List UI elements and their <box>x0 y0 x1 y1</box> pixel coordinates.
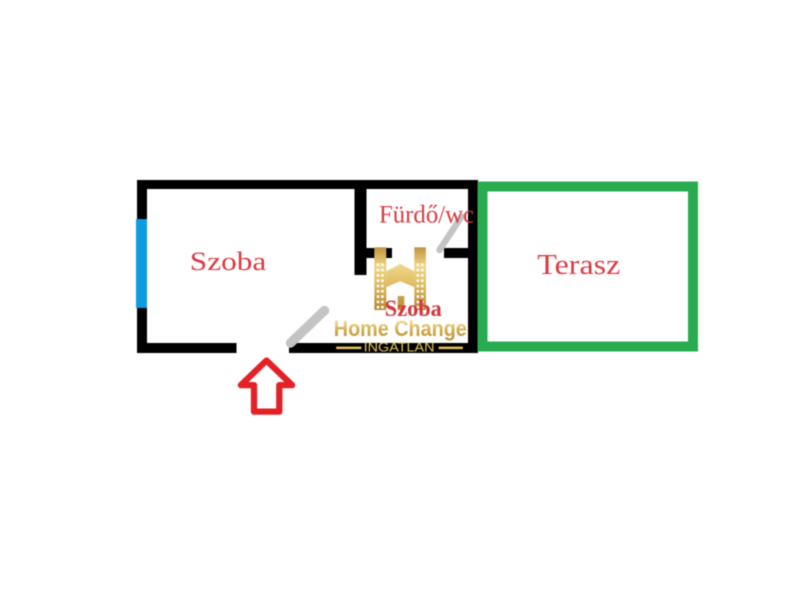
svg-text:Fürdő/wc: Fürdő/wc <box>379 201 474 228</box>
svg-text:Home Change: Home Change <box>334 316 467 341</box>
svg-text:INGATLAN: INGATLAN <box>364 339 435 354</box>
svg-text:Terasz: Terasz <box>537 250 620 281</box>
svg-text:Szoba: Szoba <box>190 247 267 276</box>
